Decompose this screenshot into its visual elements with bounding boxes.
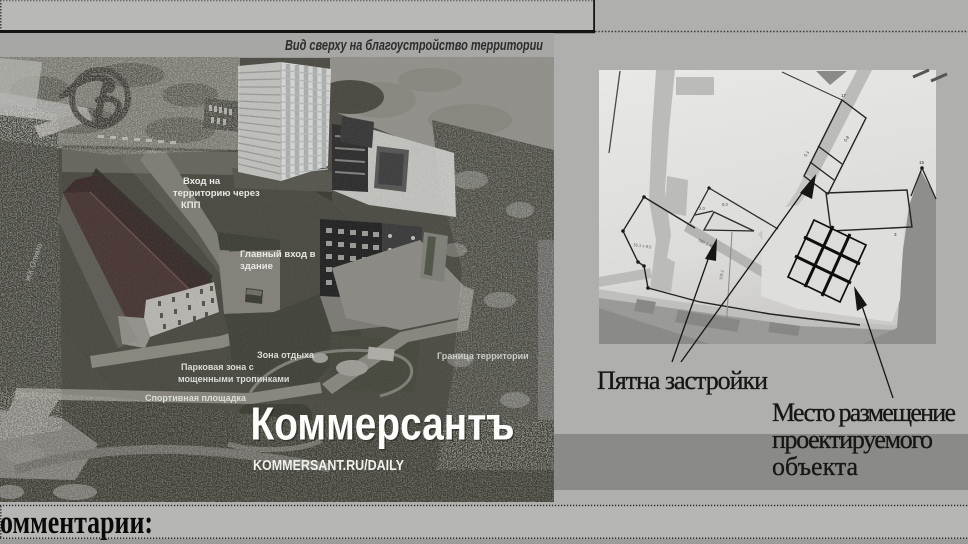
svg-text:2.0: 2.0 xyxy=(699,206,705,211)
svg-text:15: 15 xyxy=(919,160,925,165)
svg-text:Зона отдыха: Зона отдыха xyxy=(257,350,315,360)
svg-text:объекта: объекта xyxy=(772,452,859,481)
svg-text:КПП: КПП xyxy=(181,200,201,211)
svg-text:8.0: 8.0 xyxy=(722,202,728,207)
svg-text:Вход на: Вход на xyxy=(183,176,221,187)
svg-text:здание: здание xyxy=(240,261,273,272)
svg-text:омментарии:: омментарии: xyxy=(0,505,153,541)
svg-text:территорию через: территорию через xyxy=(173,188,260,199)
svg-text:KOMMERSANT.RU/DAILY: KOMMERSANT.RU/DAILY xyxy=(253,458,404,474)
svg-text:Главный вход в: Главный вход в xyxy=(240,249,316,260)
svg-text:17: 17 xyxy=(841,93,847,98)
svg-text:Вид сверху на благоустройство: Вид сверху на благоустройство территории xyxy=(285,37,543,54)
svg-text:Коммерсантъ: Коммерсантъ xyxy=(251,398,515,450)
svg-text:Место размещение: Место размещение xyxy=(772,398,956,427)
svg-text:Спортивная площадка: Спортивная площадка xyxy=(145,393,247,403)
svg-text:Пятна застройки: Пятна застройки xyxy=(597,366,768,395)
svg-text:проектируемого: проектируемого xyxy=(772,425,933,454)
svg-text:Парковая зона с: Парковая зона с xyxy=(181,362,254,372)
svg-text:мощенными тропинками: мощенными тропинками xyxy=(178,374,289,384)
svg-text:Граница территории: Граница территории xyxy=(437,351,529,361)
